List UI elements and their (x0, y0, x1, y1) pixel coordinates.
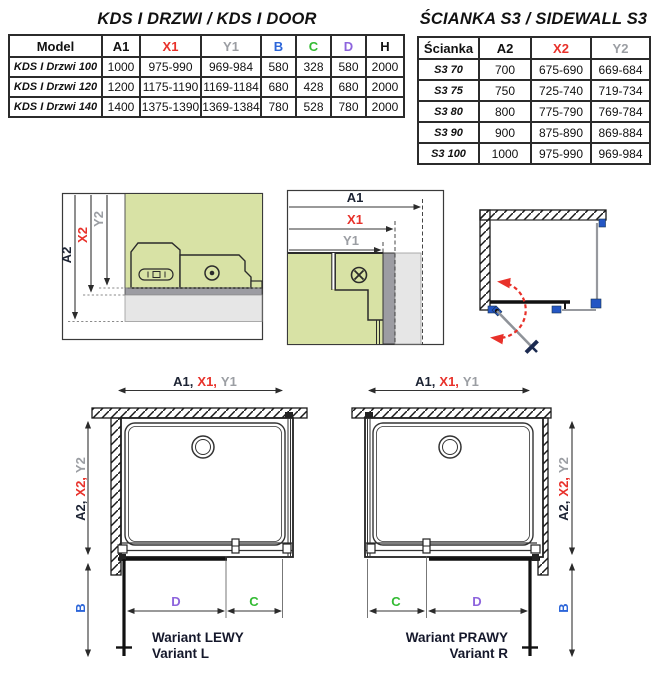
value-cell: 750 (479, 80, 531, 101)
variant-caption-line1: Wariant PRAWY (406, 630, 508, 645)
row-label: KDS I Drzwi 100 (9, 57, 102, 77)
value-cell: 975-990 (140, 57, 201, 77)
table-row: S3 90900875-890869-884 (418, 122, 650, 143)
value-cell: 800 (479, 101, 531, 122)
table-row: S3 75750725-740719-734 (418, 80, 650, 101)
value-cell: 1400 (102, 97, 140, 117)
value-cell: 680 (261, 77, 296, 97)
value-cell: 1369-1384 (201, 97, 261, 117)
bracket-icon (599, 219, 606, 227)
mounting-slot-icon (139, 269, 173, 280)
dim-label-a1: A1 (347, 190, 364, 205)
row-label: KDS I Drzwi 120 (9, 77, 102, 97)
column-header: A1 (102, 35, 140, 57)
value-cell: 1000 (102, 57, 140, 77)
wall-top (92, 408, 307, 418)
column-header: B (261, 35, 296, 57)
value-cell: 328 (296, 57, 331, 77)
value-cell: 700 (479, 59, 531, 80)
table-row: KDS I Drzwi 1001000975-990969-9845803285… (9, 57, 404, 77)
enclosure-top-view-diagram (468, 195, 656, 375)
value-cell: 975-990 (531, 143, 591, 164)
value-cell: 869-884 (591, 122, 650, 143)
value-cell: 875-890 (531, 122, 591, 143)
value-cell: 725-740 (531, 80, 591, 101)
value-cell: 780 (261, 97, 296, 117)
dim-label-a1x1y1: A1,X1,Y1 (173, 375, 237, 389)
column-header: Y2 (591, 37, 650, 59)
variant-right-diagram: A1,X1,Y1 A2,X2,Y2 B (335, 375, 635, 670)
value-cell: 528 (296, 97, 331, 117)
spec-sheet: KDS I DRZWI / KDS I DOOR ŚCIANKA S3 / SI… (0, 0, 656, 676)
dim-label-b: B (73, 603, 88, 612)
profile-strip (383, 253, 395, 344)
dim-label-x1: X1 (347, 212, 363, 227)
row-label: S3 75 (418, 80, 479, 101)
table-row: KDS I Drzwi 14014001375-13901369-1384780… (9, 97, 404, 117)
sidewall-table-title: ŚCIANKA S3 / SIDEWALL S3 (411, 10, 656, 29)
bracket-icon (591, 299, 601, 308)
value-cell: 900 (479, 122, 531, 143)
hinge-icon (532, 554, 539, 561)
dim-label-a2x2y2: A2,X2,Y2 (73, 457, 88, 521)
row-label: S3 80 (418, 101, 479, 122)
value-cell: 2000 (366, 97, 404, 117)
value-cell: 769-784 (591, 101, 650, 122)
profile-strip (125, 288, 262, 295)
value-cell: 1169-1184 (201, 77, 261, 97)
value-cell: 969-984 (201, 57, 261, 77)
dim-label-y2: Y2 (91, 211, 106, 227)
enclosure-outline (121, 418, 293, 557)
column-header: Model (9, 35, 102, 57)
value-cell: 2000 (366, 77, 404, 97)
variant-caption-line2: Variant R (449, 646, 508, 661)
door-table: ModelA1X1Y1BCDHKDS I Drzwi 1001000975-99… (8, 34, 405, 118)
column-header: X2 (531, 37, 591, 59)
value-cell: 1375-1390 (140, 97, 201, 117)
wall-top (352, 408, 551, 418)
row-label: S3 90 (418, 122, 479, 143)
wall-top (480, 210, 606, 220)
value-cell: 1200 (102, 77, 140, 97)
table-row: KDS I Drzwi 12012001175-11901169-1184680… (9, 77, 404, 97)
value-cell: 719-734 (591, 80, 650, 101)
dim-label-y1: Y1 (343, 233, 359, 248)
dim-label-x2: X2 (75, 227, 90, 243)
variant-caption-line1: Wariant LEWY (152, 630, 244, 645)
column-header: C (296, 35, 331, 57)
dim-label-a2x2y2: A2,X2,Y2 (556, 457, 571, 521)
tray-slab (395, 253, 421, 344)
value-cell: 775-790 (531, 101, 591, 122)
sidewall-table: ŚciankaA2X2Y2S3 70700675-690669-684S3 75… (417, 36, 651, 165)
row-label: S3 70 (418, 59, 479, 80)
dim-label-a2: A2 (59, 247, 74, 264)
tray-slab (125, 295, 262, 322)
column-header: A2 (479, 37, 531, 59)
variant-caption-line2: Variant L (152, 646, 209, 661)
value-cell: 780 (331, 97, 366, 117)
variant-left-diagram: A1,X1,Y1 A2,X2,Y2 B (55, 375, 355, 670)
dim-label-b: B (556, 603, 571, 612)
value-cell: 580 (261, 57, 296, 77)
value-cell: 969-984 (591, 143, 650, 164)
enclosure-outline (365, 418, 543, 557)
door-table-title: KDS I DRZWI / KDS I DOOR (8, 10, 406, 29)
row-label: S3 100 (418, 143, 479, 164)
value-cell: 675-690 (531, 59, 591, 80)
wall-left (480, 210, 490, 310)
value-cell: 1000 (479, 143, 531, 164)
dim-label-d: D (472, 594, 481, 609)
sidewall-profile-diagram: A2 X2 Y2 (55, 185, 270, 350)
door-profile-diagram: A1 X1 Y1 (283, 185, 448, 350)
value-cell: 580 (331, 57, 366, 77)
dim-label-d: D (171, 594, 180, 609)
bracket-icon (552, 306, 561, 313)
table-row: S3 70700675-690669-684 (418, 59, 650, 80)
column-header: H (366, 35, 404, 57)
row-label: KDS I Drzwi 140 (9, 97, 102, 117)
value-cell: 669-684 (591, 59, 650, 80)
column-header: Y1 (201, 35, 261, 57)
value-cell: 428 (296, 77, 331, 97)
table-row: S3 80800775-790769-784 (418, 101, 650, 122)
dim-label-c: C (391, 594, 401, 609)
column-header: Ścianka (418, 37, 479, 59)
table-row: S3 1001000975-990969-984 (418, 143, 650, 164)
dim-label-c: C (249, 594, 259, 609)
door-open (497, 311, 532, 347)
column-header: X1 (140, 35, 201, 57)
dim-label-a1x1y1: A1,X1,Y1 (415, 375, 479, 389)
column-header: D (331, 35, 366, 57)
value-cell: 680 (331, 77, 366, 97)
value-cell: 1175-1190 (140, 77, 201, 97)
value-cell: 2000 (366, 57, 404, 77)
